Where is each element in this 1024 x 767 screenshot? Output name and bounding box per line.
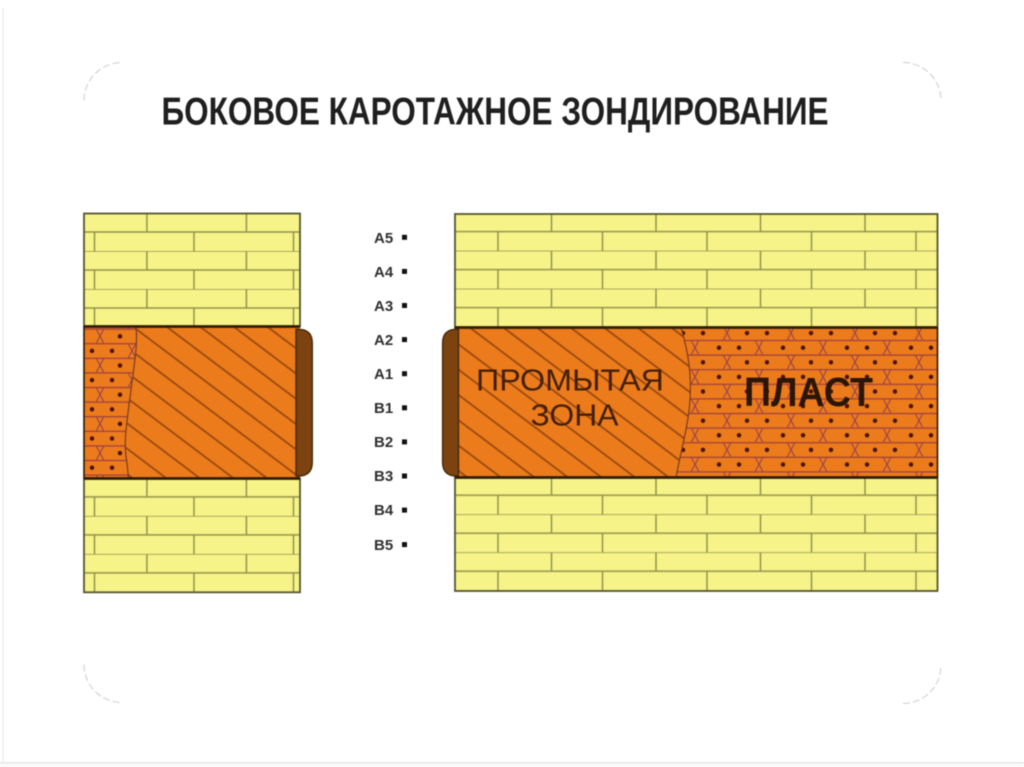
svg-text:B3: B3: [374, 468, 393, 485]
svg-text:B1: B1: [374, 400, 393, 417]
svg-text:A3: A3: [374, 298, 393, 315]
svg-text:A2: A2: [374, 332, 393, 349]
svg-text:A4: A4: [374, 264, 394, 281]
svg-text:B5: B5: [374, 537, 393, 554]
svg-text:A1: A1: [374, 366, 393, 383]
svg-text:B4: B4: [374, 502, 394, 519]
svg-text:ПРОМЫТАЯ: ПРОМЫТАЯ: [476, 363, 664, 398]
svg-text:ПЛАСТ: ПЛАСТ: [744, 369, 873, 415]
svg-text:B2: B2: [374, 434, 393, 451]
svg-text:ЗОНА: ЗОНА: [531, 398, 619, 433]
svg-text:A5: A5: [374, 230, 393, 247]
svg-text:БОКОВОЕ КАРОТАЖНОЕ ЗОНДИРОВАНИ: БОКОВОЕ КАРОТАЖНОЕ ЗОНДИРОВАНИЕ: [162, 91, 829, 134]
